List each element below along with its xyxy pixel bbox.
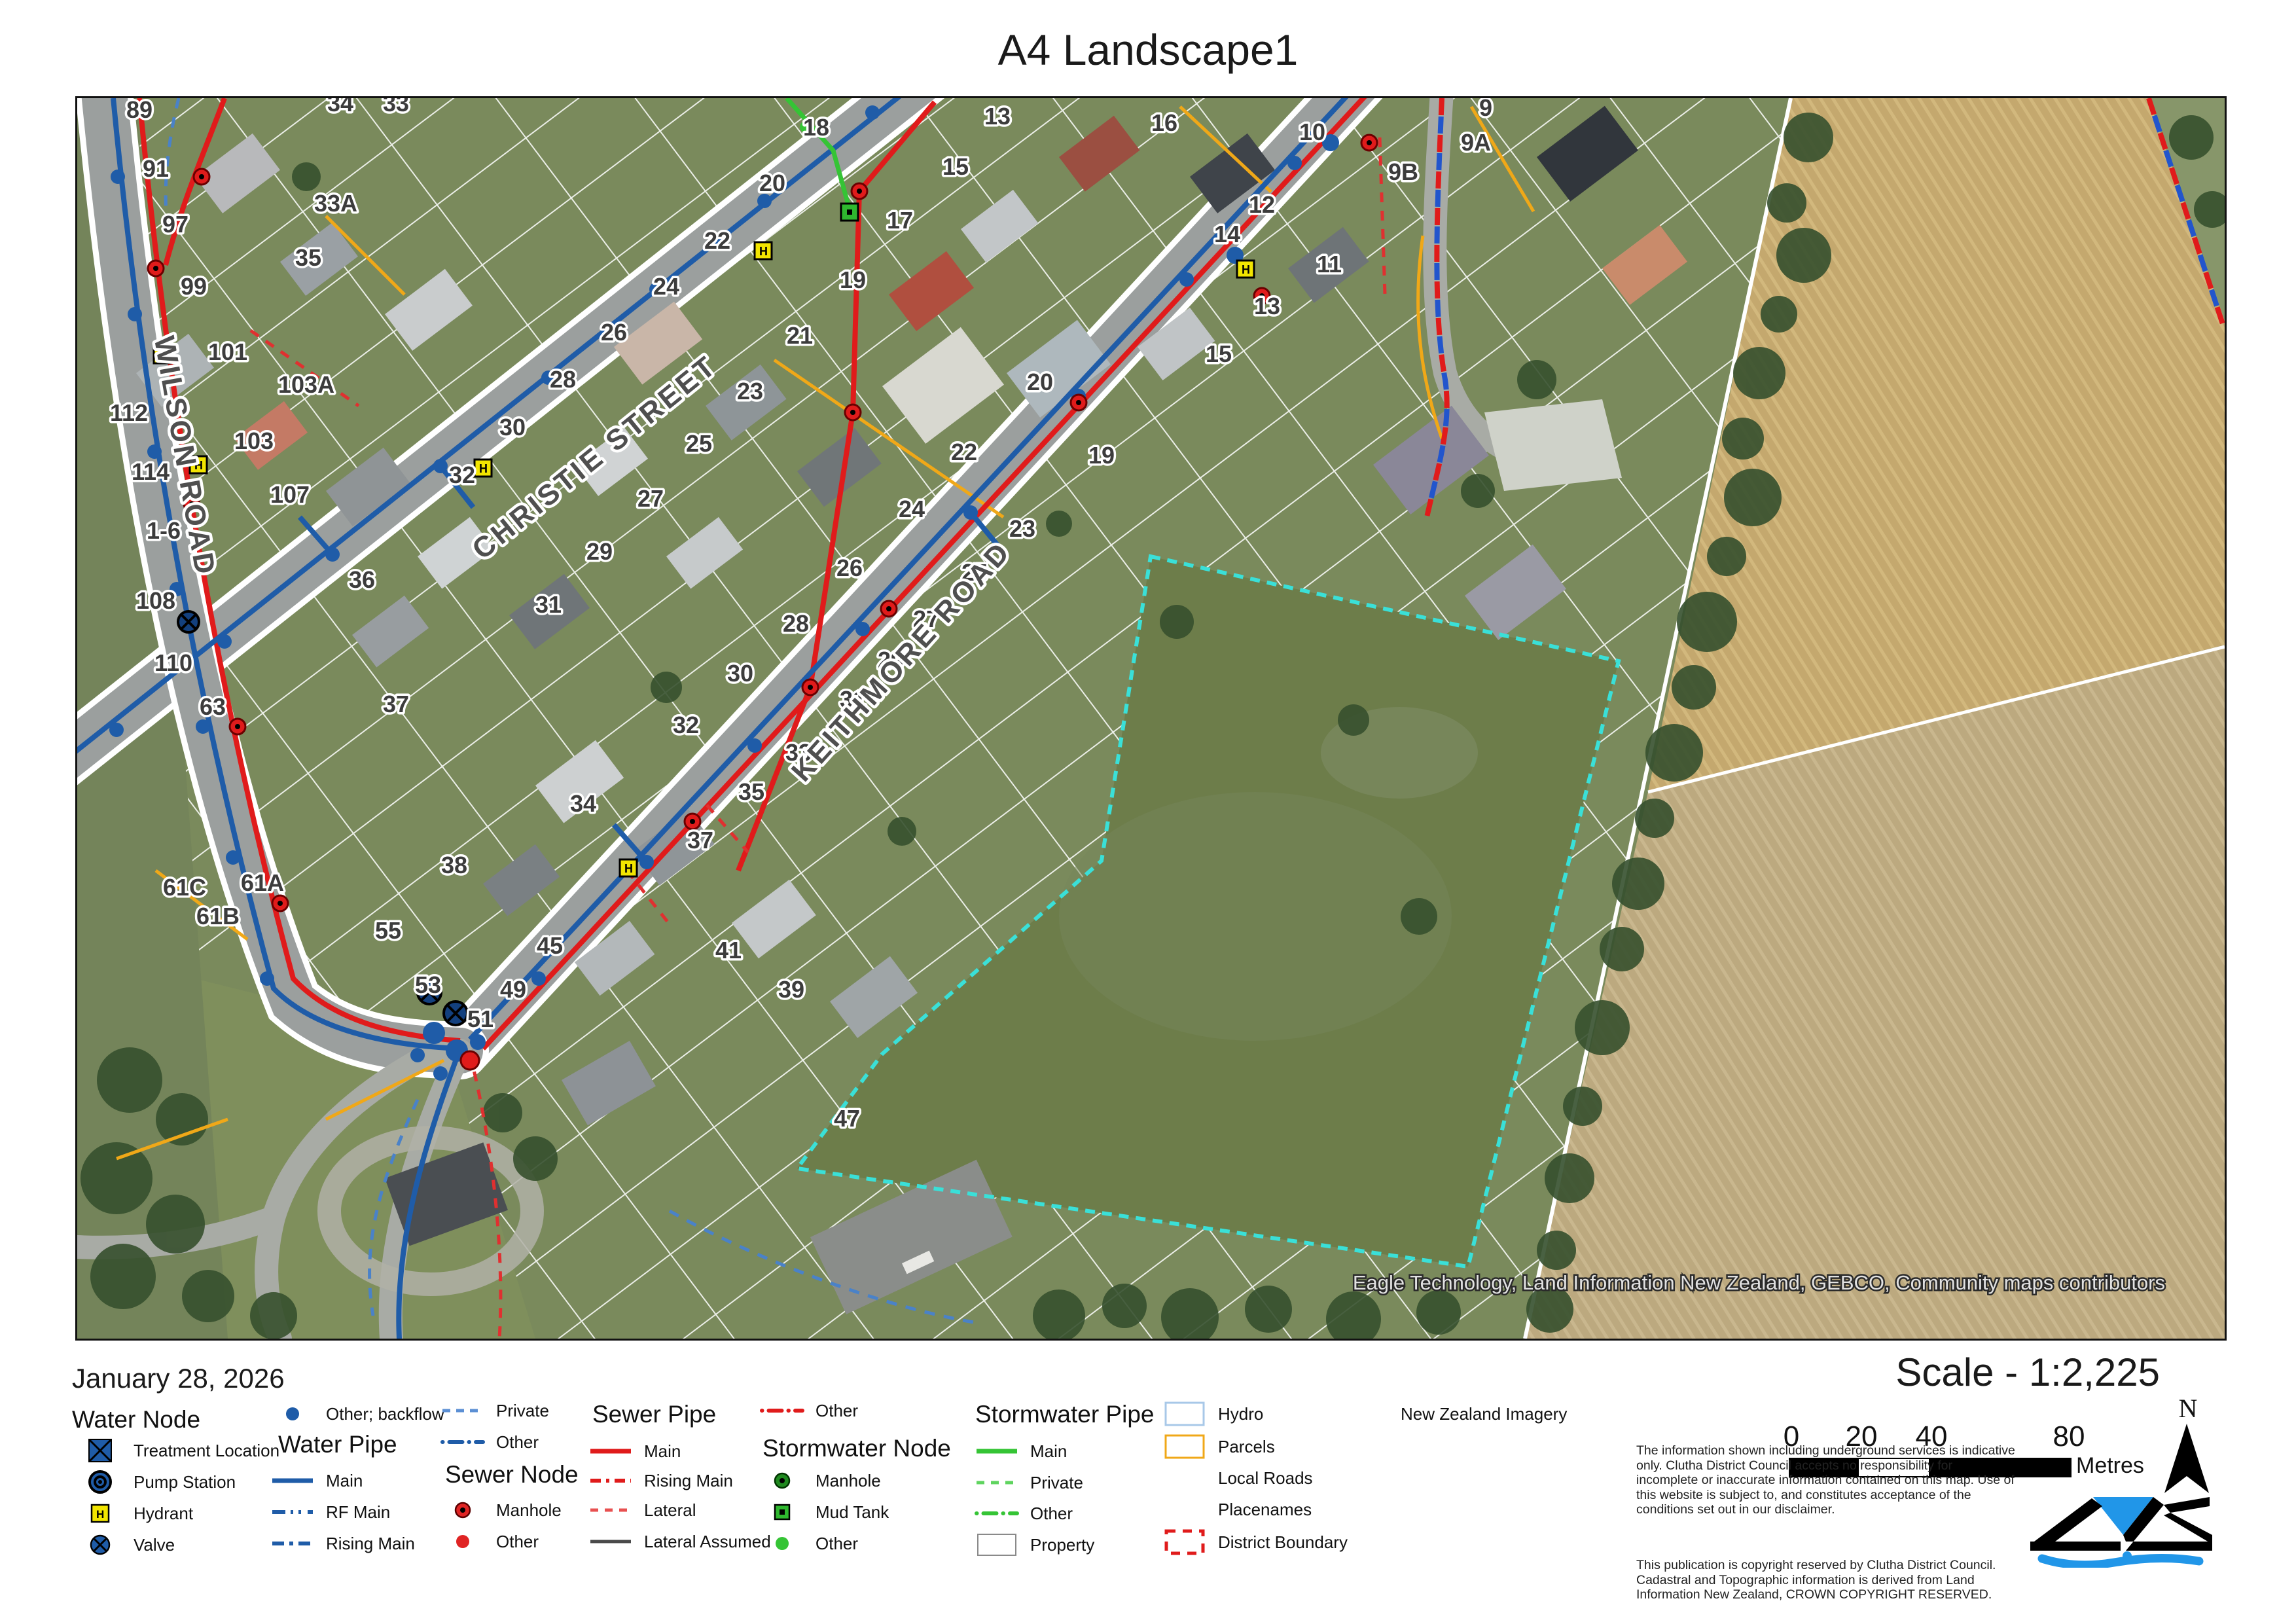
parcel-number: 16	[1151, 109, 1177, 136]
parcel-number: 23	[1009, 515, 1035, 542]
parcel-number: 36	[349, 566, 375, 593]
parcel-number: 101	[208, 338, 247, 365]
legend-item-storm-other-node: Other	[759, 1530, 858, 1557]
parcel-number: 30	[727, 660, 753, 687]
water-private-line	[440, 1405, 486, 1416]
legend-item-sewer-manhole: Manhole	[440, 1497, 562, 1523]
parcel-number: 47	[834, 1105, 860, 1132]
legend-header-sewer-node: Sewer Node	[445, 1461, 579, 1489]
parcel-number: 35	[295, 244, 321, 271]
parcel-number: 37	[687, 827, 713, 854]
pump-station-icon	[77, 1469, 123, 1495]
storm-other-node-icon	[759, 1536, 805, 1551]
parcel-number: 38	[441, 852, 467, 878]
legend-item-sewer-pipe-other: Other	[759, 1398, 858, 1424]
parcel-number: 34	[570, 790, 596, 817]
storm-manhole-icon	[759, 1471, 805, 1490]
parcel-number: 110	[154, 649, 192, 676]
parcel-number: 13	[984, 103, 1011, 130]
parcel-number: 103A	[278, 371, 334, 398]
parcel-number: 9A	[1461, 129, 1491, 156]
legend-item-sewer-lateral: Lateral	[588, 1497, 696, 1523]
parcel-number: 26	[601, 319, 627, 346]
sewer-main-line	[588, 1446, 634, 1456]
parcel-number: 112	[110, 399, 148, 426]
legend-item-storm-private: Private	[974, 1470, 1083, 1496]
sewer-other-line	[759, 1405, 805, 1416]
water-other-line	[440, 1437, 486, 1447]
parcel-number: 21	[787, 322, 813, 349]
mud-tank-icon	[759, 1503, 805, 1521]
parcel-number: 24	[653, 273, 679, 300]
legend-item-valve: Valve	[77, 1532, 175, 1558]
parcel-number: 103	[234, 427, 274, 454]
parcel-number: 24	[899, 496, 925, 522]
parcel-number: 108	[136, 587, 175, 614]
parcel-number: 32	[673, 712, 699, 738]
legend-item-treatment-location: Treatment Location	[77, 1437, 279, 1464]
sewer-other-node-icon	[440, 1534, 486, 1549]
legend-header-stormwater-pipe: Stormwater Pipe	[975, 1401, 1155, 1428]
parcel-number: 53	[415, 971, 441, 998]
parcel-number: 91	[143, 155, 169, 182]
disclaimer-text: The information shown including undergro…	[1636, 1443, 2016, 1517]
page-title: A4 Landscape1	[0, 25, 2296, 75]
legend-item-sewer-main: Main	[588, 1438, 681, 1464]
sewer-lateral-line	[588, 1505, 634, 1515]
legend-item-water-main: Main	[270, 1468, 363, 1494]
legend-item-placenames: Placenames	[1162, 1496, 1312, 1523]
legend-item-sewer-rising-main: Rising Main	[588, 1468, 733, 1494]
parcel-number: 27	[637, 485, 664, 512]
parcel-number: 61B	[196, 903, 240, 929]
parcel-number: 63	[200, 693, 226, 720]
storm-main-line	[974, 1446, 1020, 1456]
svg-text:H: H	[624, 862, 633, 875]
parcel-number: 26	[836, 554, 863, 581]
water-other-node-icon	[270, 1406, 315, 1422]
legend-item-water-rf-main: RF Main	[270, 1499, 390, 1525]
legend-item-pump-station: Pump Station	[77, 1469, 236, 1495]
parcel-number: 28	[550, 366, 576, 393]
legend-item-water-other: Other	[440, 1429, 539, 1455]
water-main-line	[270, 1475, 315, 1486]
legend-header-sewer-pipe: Sewer Pipe	[592, 1401, 716, 1428]
svg-text:H: H	[96, 1508, 104, 1521]
scale-unit: Metres	[2076, 1453, 2144, 1479]
storm-other-line	[974, 1508, 1020, 1519]
parcel-number: 17	[887, 207, 913, 234]
legend-item-property: Property	[974, 1532, 1094, 1558]
parcel-number: 18	[803, 114, 829, 141]
print-layout-page: A4 Landscape1	[0, 0, 2296, 1624]
legend-header-stormwater-node: Stormwater Node	[762, 1435, 951, 1462]
legend-item-sewer-lateral-assumed: Lateral Assumed	[588, 1528, 771, 1555]
copyright-text: This publication is copyright reserved b…	[1636, 1558, 2016, 1602]
legend-item-storm-manhole: Manhole	[759, 1468, 881, 1494]
parcel-number: 20	[1027, 369, 1053, 395]
parcel-number: 89	[126, 98, 152, 123]
storm-private-line	[974, 1477, 1020, 1488]
parcel-number: 61C	[163, 874, 206, 901]
sewer-manhole-icon	[440, 1501, 486, 1519]
parcel-number: 33A	[314, 190, 357, 217]
legend-item-mud-tank: Mud Tank	[759, 1499, 889, 1525]
parcel-number: 19	[840, 266, 866, 293]
parcel-number: 29	[586, 538, 613, 565]
svg-text:H: H	[1242, 263, 1250, 276]
parcel-number: 33	[383, 98, 409, 117]
parcel-number: 32	[449, 461, 475, 488]
aerial-map: HHH HHH 89919799101103A1031071121141-610…	[77, 98, 2225, 1339]
parcel-number: 107	[270, 481, 310, 508]
parcel-number: 10	[1299, 118, 1325, 145]
map-canvas: HHH HHH 89919799101103A1031071121141-610…	[75, 96, 2227, 1341]
parcel-number: 22	[951, 439, 977, 465]
legend-item-water-rising-main: Rising Main	[270, 1530, 415, 1557]
parcel-number: 49	[500, 976, 526, 1003]
parcel-number: 14	[1214, 221, 1240, 247]
legend-item-district-boundary: District Boundary	[1162, 1529, 1348, 1555]
hydro-swatch	[1162, 1401, 1208, 1426]
parcel-number: 12	[1249, 191, 1275, 218]
legend-item-storm-main: Main	[974, 1438, 1067, 1464]
scale-tick-80: 80	[2053, 1420, 2085, 1453]
legend-item-sewer-other-node: Other	[440, 1528, 539, 1555]
legend-item-storm-other: Other	[974, 1500, 1073, 1526]
parcel-number: 15	[942, 153, 969, 180]
parcel-number: 55	[375, 917, 401, 944]
parcel-number: 30	[499, 414, 526, 441]
parcel-number: 15	[1206, 340, 1232, 367]
parcel-number: 25	[686, 430, 712, 457]
parcels-swatch	[1162, 1434, 1208, 1459]
svg-text:H: H	[759, 245, 768, 258]
parcel-number: 11	[1317, 251, 1342, 278]
parcel-number: 114	[132, 458, 170, 485]
sewer-lateral-assumed-line	[588, 1536, 634, 1547]
treatment-location-icon	[77, 1437, 123, 1464]
parcel-number: 41	[715, 937, 742, 964]
north-arrow-icon	[2163, 1424, 2210, 1497]
parcel-number: 22	[704, 227, 730, 254]
hydrant-icon: H	[77, 1504, 123, 1523]
parcel-number: 1-6	[147, 517, 181, 544]
legend-header-water-node: Water Node	[72, 1406, 200, 1434]
scale-label: Scale - 1:2,225	[1820, 1350, 2160, 1395]
legend-item-hydro: Hydro	[1162, 1401, 1263, 1427]
valve-icon	[77, 1534, 123, 1556]
legend-item-hydrant: H Hydrant	[77, 1500, 193, 1526]
parcel-number: 61A	[241, 869, 284, 896]
parcel-number: 20	[759, 170, 785, 196]
legend-header-water-pipe: Water Pipe	[278, 1431, 397, 1458]
water-rising-main-line	[270, 1538, 315, 1549]
parcel-number: 9	[1479, 98, 1492, 121]
legend-item-nz-imagery: New Zealand Imagery	[1401, 1401, 1567, 1427]
parcel-number: 9B	[1388, 158, 1418, 185]
parcel-number: 97	[162, 211, 188, 238]
parcel-number: 51	[467, 1005, 493, 1032]
map-attribution: Eagle Technology, Land Information New Z…	[1353, 1271, 2165, 1294]
sewer-rising-main-line	[588, 1475, 634, 1486]
parcel-number: 28	[783, 610, 809, 637]
parcel-number: 31	[535, 591, 562, 618]
cdc-logo	[2029, 1496, 2214, 1568]
water-rf-main-line	[270, 1507, 315, 1517]
parcel-number: 39	[778, 976, 804, 1003]
north-label: N	[2165, 1393, 2211, 1424]
legend-item-water-private: Private	[440, 1398, 549, 1424]
svg-text:H: H	[479, 462, 488, 475]
parcel-number: 45	[537, 932, 563, 959]
map-date: January 28, 2026	[72, 1363, 285, 1394]
district-boundary-swatch	[1162, 1529, 1208, 1555]
legend-item-local-roads: Local Roads	[1162, 1465, 1313, 1491]
parcel-number: 99	[181, 273, 207, 300]
parcel-number: 23	[737, 378, 763, 405]
legend-item-other-backflow: Other; backflow	[270, 1401, 444, 1427]
parcel-number: 35	[738, 778, 764, 805]
legend-item-parcels: Parcels	[1162, 1434, 1275, 1460]
parcel-number: 19	[1088, 442, 1115, 469]
parcel-number: 34	[327, 98, 353, 117]
property-swatch	[974, 1533, 1020, 1557]
parcel-number: 13	[1254, 293, 1280, 319]
parcel-number: 37	[383, 691, 409, 717]
